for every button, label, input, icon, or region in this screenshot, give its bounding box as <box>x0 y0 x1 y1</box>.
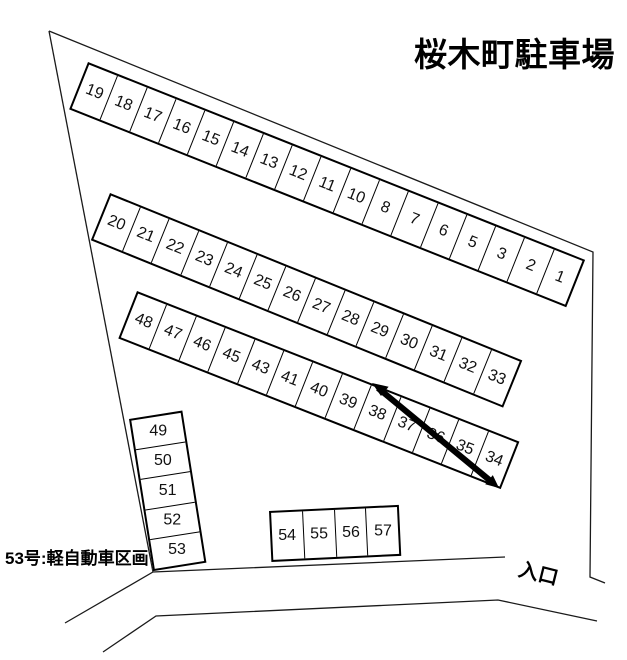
stall-number: 2 <box>524 257 538 275</box>
stall-number: 23 <box>193 248 216 270</box>
stall-number: 6 <box>436 222 450 240</box>
stall-number: 49 <box>149 423 167 439</box>
stall-number: 52 <box>164 513 182 529</box>
stall-number: 10 <box>345 185 367 206</box>
stall-number: 31 <box>427 343 450 365</box>
stall-number: 8 <box>378 199 392 217</box>
stall-number: 26 <box>281 284 304 306</box>
stall-number: 43 <box>249 356 271 377</box>
stall-number: 18 <box>112 93 134 114</box>
stall-number: 33 <box>486 367 509 389</box>
stall-number: 3 <box>495 245 509 263</box>
stall-number: 15 <box>200 128 222 149</box>
stall-number: 51 <box>159 483 177 499</box>
stall-number: 20 <box>105 212 128 234</box>
stall-number: 34 <box>483 448 505 469</box>
stall-number: 25 <box>251 272 274 294</box>
stall-number: 17 <box>141 104 163 125</box>
stall-number: 45 <box>220 345 242 366</box>
stall-number: 48 <box>132 310 154 331</box>
stall-number: 7 <box>407 210 421 228</box>
stall-number: 24 <box>222 260 245 282</box>
stall-number: 38 <box>366 402 388 423</box>
stall-number: 40 <box>308 379 330 400</box>
stall-number: 28 <box>339 307 362 329</box>
stall-number: 32 <box>456 355 479 377</box>
parking-lot-map: 191817161514131211108765321 202122232425… <box>0 0 627 660</box>
parking-stall-54: 54 <box>271 511 304 559</box>
page-title: 桜木町駐車場 <box>414 28 615 76</box>
stall-number: 53 <box>168 542 186 558</box>
parking-stall-56: 56 <box>334 508 368 556</box>
stall-number: 11 <box>316 174 337 195</box>
parking-stall-57: 57 <box>365 507 399 555</box>
stall-number: 37 <box>395 414 417 435</box>
stall-number: 36 <box>425 425 447 446</box>
stall-number: 35 <box>454 437 476 458</box>
stall-number: 30 <box>398 331 421 353</box>
stall-number: 14 <box>229 139 251 160</box>
stall-number: 57 <box>374 523 392 539</box>
road-edge-lower <box>103 600 597 652</box>
parking-stall-55: 55 <box>302 510 336 558</box>
stall-number: 1 <box>553 268 567 286</box>
stall-number: 55 <box>310 526 328 542</box>
stall-number: 46 <box>191 333 213 354</box>
parking-stall-53: 53 <box>150 531 204 569</box>
stall-number: 5 <box>465 233 479 251</box>
stall-number: 47 <box>162 322 184 343</box>
kei-vehicle-note: 53号:軽自動車区画 <box>5 544 149 569</box>
stall-number: 22 <box>164 236 187 258</box>
stall-number: 50 <box>154 453 172 469</box>
stall-number: 19 <box>83 81 105 102</box>
stall-number: 21 <box>134 224 157 246</box>
stall-number: 56 <box>342 525 360 541</box>
stall-number: 12 <box>287 162 309 183</box>
stall-number: 39 <box>337 391 359 412</box>
stall-number: 16 <box>171 116 193 137</box>
stall-number: 29 <box>368 319 391 341</box>
parking-row-bottom: 54555657 <box>269 505 401 562</box>
stall-number: 54 <box>279 528 297 544</box>
stall-number: 41 <box>278 368 300 389</box>
stall-number: 13 <box>258 151 280 172</box>
stall-number: 27 <box>310 296 333 318</box>
